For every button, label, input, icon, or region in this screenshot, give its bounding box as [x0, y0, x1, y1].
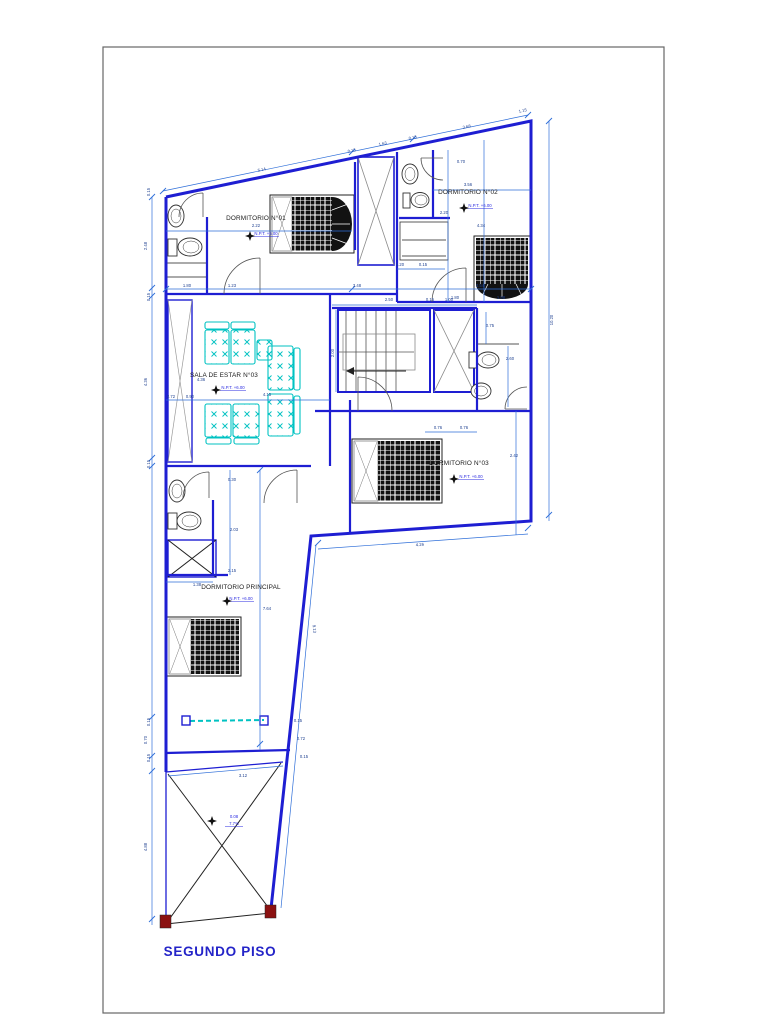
room-label: DORMITORIO PRINCIPAL	[201, 584, 281, 591]
bed-dormitorio-3	[352, 439, 442, 503]
dimension-label: 2.00	[330, 348, 335, 357]
room-level-label: N.P.T. +6.00	[459, 474, 483, 479]
dimension-label: 4.88	[143, 842, 148, 851]
toilet-bath-1	[168, 238, 202, 256]
dimension-label: 0.72	[297, 736, 306, 741]
dimension-label: 1.23	[228, 283, 237, 288]
patio-note-line1: 0.08	[230, 814, 239, 819]
sofa	[231, 330, 255, 364]
dimension-label: 0.76	[434, 425, 443, 430]
dimension-label: 0.15	[426, 297, 435, 302]
toilet-bath-3	[469, 352, 499, 368]
dimension-label: 0.15	[419, 262, 428, 267]
dimension-label: 4.15	[263, 392, 272, 397]
dimension-label: 0.15	[146, 292, 151, 301]
sink-bath-3	[471, 383, 491, 399]
dimension-label: 1.98	[497, 295, 506, 300]
dimension-label: 4.36	[197, 377, 206, 382]
drawing-sheet: DORMITORIO N°01N.P.T. +6.00DORMITORIO N°…	[0, 0, 768, 1024]
dimension-label: 0.15	[146, 459, 151, 468]
sink-bath-2	[402, 164, 418, 184]
dimension-label: 1.20	[396, 262, 405, 267]
dimension-label: 0.15	[294, 718, 303, 723]
floor-plan-svg: DORMITORIO N°01N.P.T. +6.00DORMITORIO N°…	[0, 0, 768, 1024]
dimension-label: 1.80	[183, 283, 192, 288]
dimension-label: 2.48	[143, 241, 148, 250]
dimension-label: 10.20	[549, 314, 554, 325]
dimension-label: 0.15	[300, 754, 309, 759]
dimension-label: 0.15	[146, 717, 151, 726]
dimension-label: 2.22	[252, 223, 261, 228]
column	[265, 905, 276, 918]
dimension-label: 0.70	[457, 159, 466, 164]
sofa	[233, 404, 259, 437]
column	[160, 915, 171, 928]
dimension-label: 2.60	[506, 356, 515, 361]
room-level-label: N.P.T. +6.00	[468, 203, 492, 208]
dimension-label: 4.36	[143, 377, 148, 386]
sofa	[268, 346, 293, 390]
dimension-label: 3.12	[239, 773, 248, 778]
drawing-title: SEGUNDO PISO	[164, 944, 277, 959]
dimension-label: 0.90	[186, 394, 195, 399]
room-label: DORMITORIO N°01	[226, 214, 286, 222]
bed-dormitorio-2	[474, 236, 530, 302]
dimension-label: 3.48	[353, 283, 362, 288]
dimension-label: 0.15	[146, 187, 151, 196]
dimension-label: 9.13	[312, 625, 318, 634]
dimension-label: 0.70	[143, 735, 148, 744]
dimension-label: 2.15	[228, 568, 237, 573]
dimension-label: 2.72	[167, 394, 176, 399]
sofa	[205, 404, 231, 437]
dimension-label: 2.42	[510, 453, 519, 458]
toilet-bath-2	[403, 193, 429, 209]
sink-bath-1	[168, 205, 184, 227]
room-label: DORMITORIO N°03	[429, 459, 489, 467]
dimension-label: 7.64	[263, 606, 272, 611]
sink-bath-4	[169, 480, 185, 502]
dimension-label: 1.80	[451, 295, 460, 300]
dimension-label: 0.30	[228, 477, 237, 482]
dimension-label: 4.26	[416, 542, 425, 548]
room-level-label: N.P.T. +6.00	[254, 231, 278, 236]
dimension-label: 0.15	[146, 753, 151, 762]
dimension-label: 3.54	[476, 283, 485, 288]
sofa	[205, 330, 229, 364]
room-label: DORMITORIO N°02	[438, 188, 498, 196]
room-level-label: N.P.T. +6.00	[229, 596, 253, 601]
dimension-label: 0.75	[486, 323, 495, 328]
patio-note-line2: 7.7%	[229, 821, 239, 826]
dimension-label: 4.34	[477, 223, 486, 228]
bed-dormitorio-1	[270, 195, 354, 253]
dimension-label: 2.50	[385, 297, 394, 302]
dimension-label: 0.76	[460, 425, 469, 430]
bed-dormitorio-principal	[167, 617, 241, 676]
room-level-label: N.P.T. +6.00	[221, 385, 245, 390]
dimension-label: 3.56	[464, 182, 473, 187]
dimension-label: 1.38	[193, 582, 202, 587]
dimension-label: 2.20	[440, 210, 449, 215]
dimension-label: 2.03	[230, 527, 239, 532]
toilet-bath-4	[168, 512, 201, 530]
